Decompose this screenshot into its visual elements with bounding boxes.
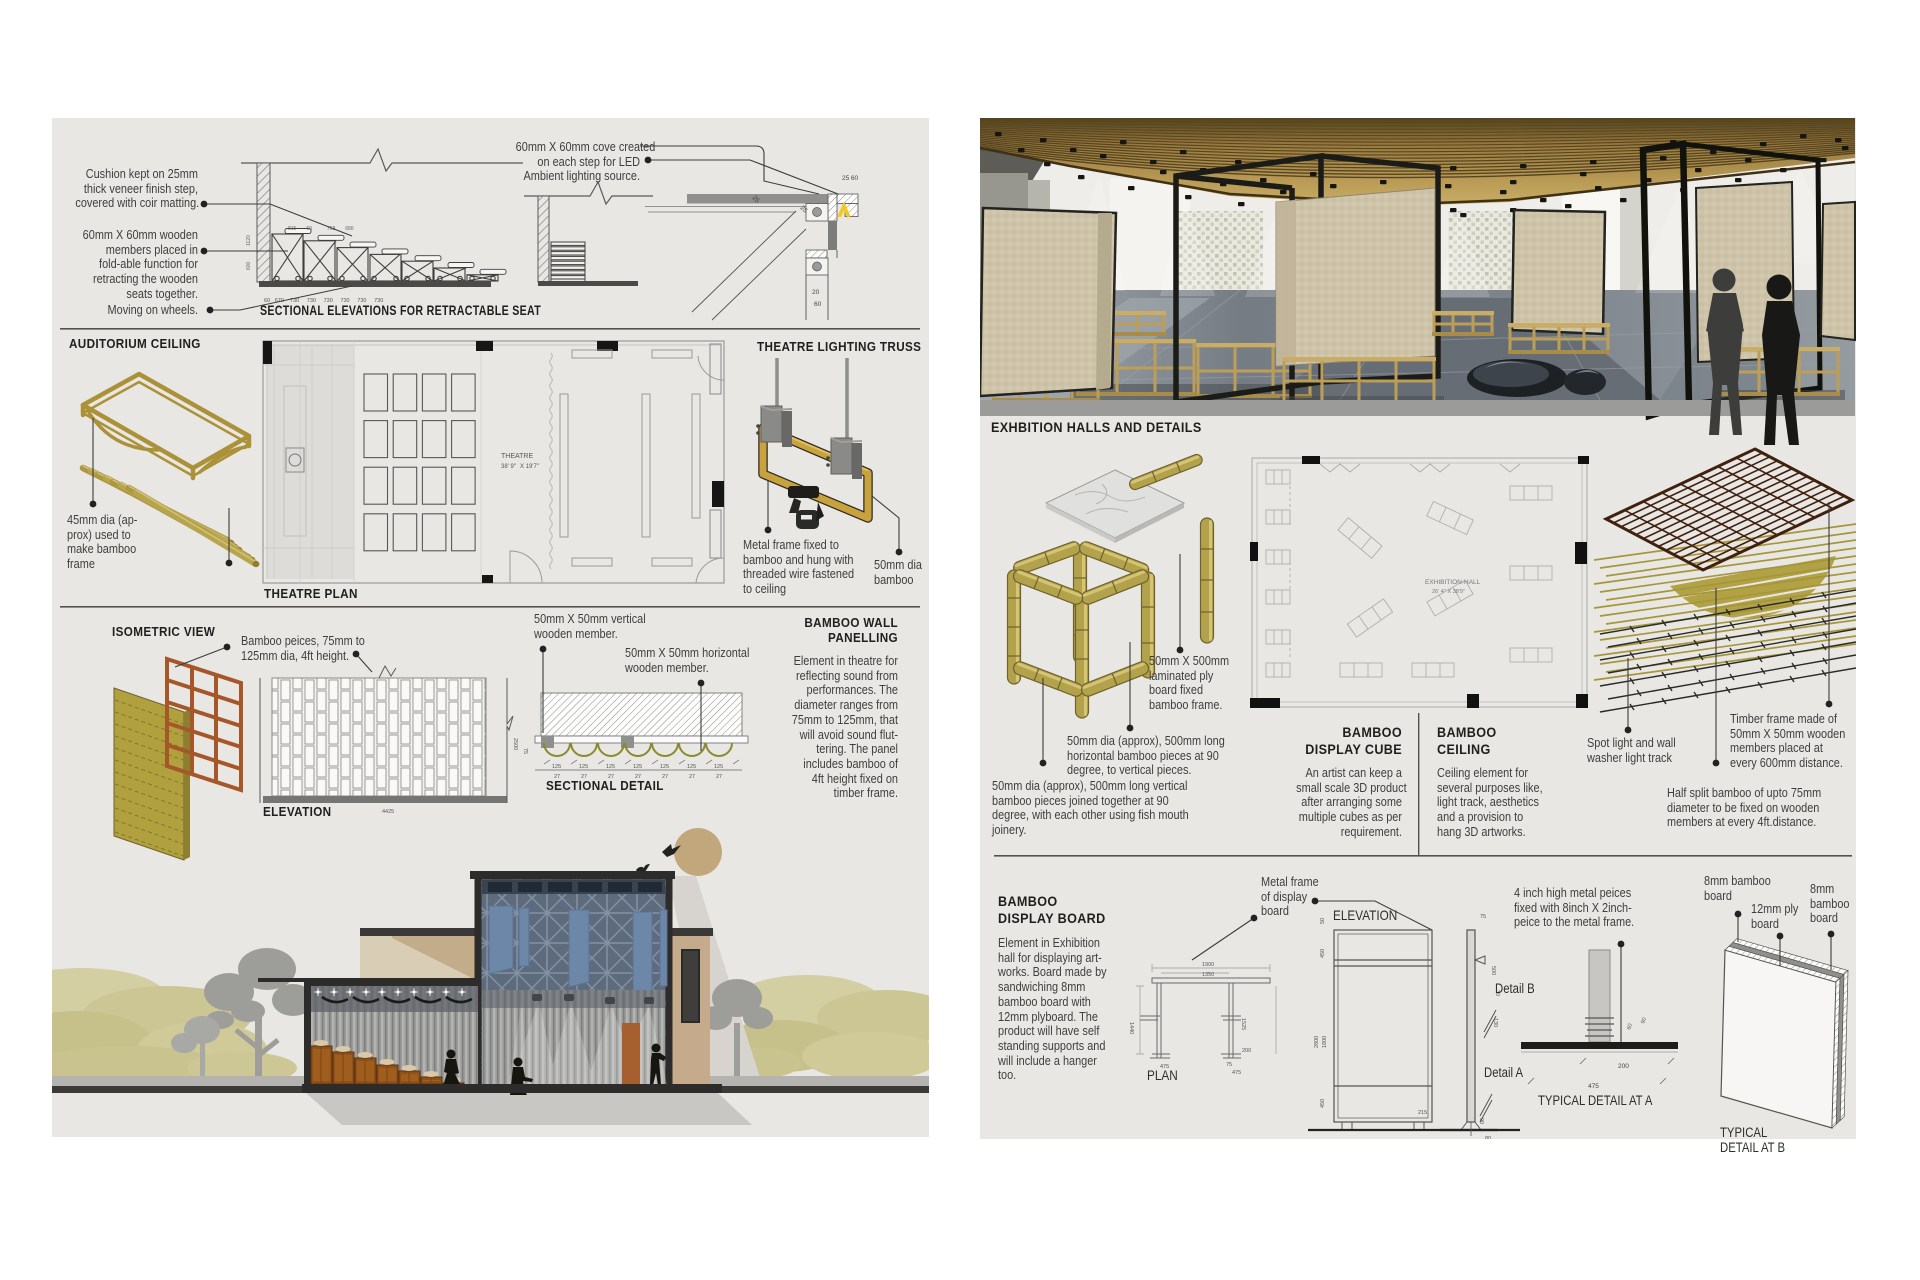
svg-text:27: 27 [716,774,722,780]
svg-text:90: 90 [1640,1017,1648,1025]
svg-text:2800: 2800 [1314,1036,1320,1048]
svg-text:38' 9" X 19'7": 38' 9" X 19'7" [501,464,539,470]
svg-text:1800: 1800 [1322,1036,1328,1048]
svg-text:475: 475 [1232,1070,1241,1076]
svg-text:2500: 2500 [512,738,518,750]
svg-text:EXHIBITION-HALL: EXHIBITION-HALL [1425,579,1481,586]
svg-text:450: 450 [1320,949,1326,958]
svg-text:1120: 1120 [246,235,252,246]
svg-text:4425: 4425 [382,809,394,815]
svg-text:1440: 1440 [1128,1022,1134,1034]
svg-text:27: 27 [689,774,695,780]
svg-text:25 60: 25 60 [842,175,858,182]
svg-text:200: 200 [1618,1063,1629,1070]
svg-text:60: 60 [1626,1023,1634,1031]
svg-text:THEATRE: THEATRE [501,453,533,460]
svg-text:200: 200 [1242,1048,1251,1054]
svg-text:1350: 1350 [1202,972,1214,978]
svg-text:1900: 1900 [1202,962,1214,968]
svg-text:600: 600 [246,261,252,270]
svg-text:125: 125 [714,764,723,770]
svg-text:125: 125 [552,764,561,770]
svg-text:215: 215 [1418,1110,1427,1116]
svg-text:75: 75 [1480,914,1486,920]
svg-text:60: 60 [814,301,822,308]
svg-text:20: 20 [812,289,820,296]
svg-text:1525: 1525 [1240,1018,1246,1030]
svg-text:125: 125 [660,764,669,770]
svg-text:125: 125 [579,764,588,770]
svg-text:26' 4" X 38'9": 26' 4" X 38'9" [1432,589,1465,595]
svg-text:815 60 768 680: 815 60 768 680 [288,226,354,232]
svg-text:125: 125 [606,764,615,770]
svg-text:500: 500 [1490,966,1496,975]
svg-text:125: 125 [633,764,642,770]
svg-text:475: 475 [1588,1083,1599,1090]
svg-text:125: 125 [687,764,696,770]
svg-text:80: 80 [1485,1136,1491,1139]
svg-text:75: 75 [1226,1062,1232,1068]
svg-text:75: 75 [522,748,528,754]
svg-text:450: 450 [1320,1099,1326,1108]
